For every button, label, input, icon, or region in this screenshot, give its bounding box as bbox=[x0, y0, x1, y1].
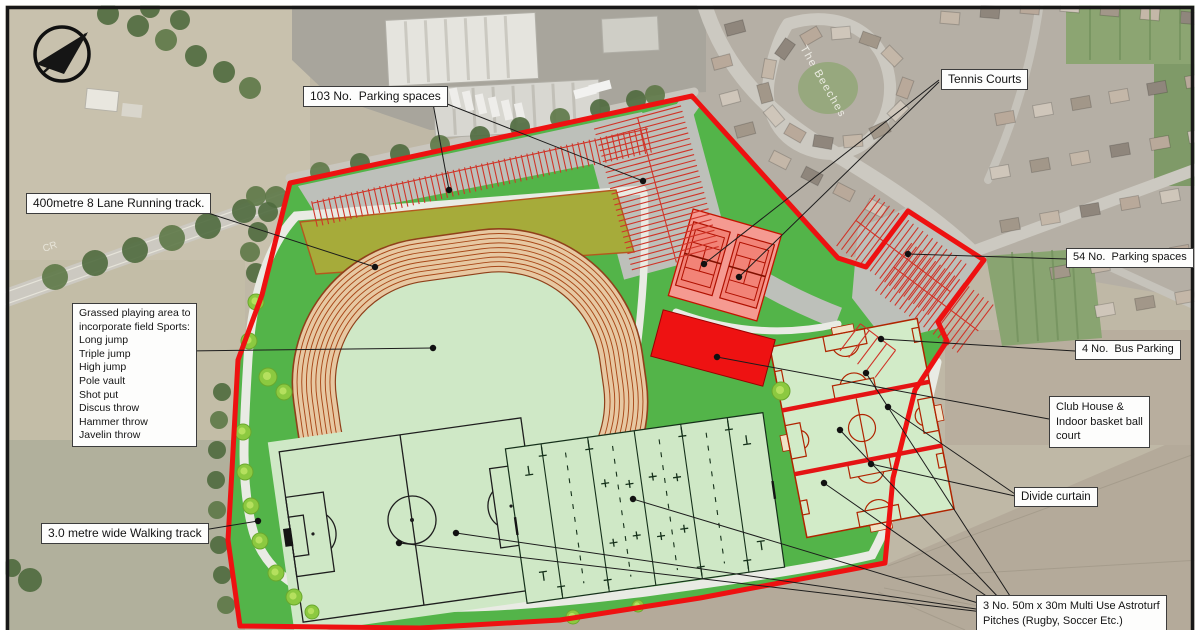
tree bbox=[185, 45, 207, 67]
tree bbox=[122, 237, 148, 263]
tree bbox=[246, 186, 266, 206]
tree bbox=[308, 608, 314, 614]
tree bbox=[207, 471, 225, 489]
leader-dot bbox=[701, 261, 707, 267]
warehouse-building bbox=[602, 16, 660, 53]
leader-dot bbox=[255, 518, 261, 524]
tree bbox=[258, 202, 278, 222]
cottage-building bbox=[85, 88, 119, 111]
house-roof bbox=[843, 134, 863, 148]
leader-dot bbox=[372, 264, 378, 270]
house-roof bbox=[831, 26, 851, 40]
leader-dot bbox=[878, 336, 884, 342]
house-roof bbox=[1135, 295, 1156, 310]
leader-dot bbox=[905, 251, 911, 257]
tree bbox=[240, 467, 247, 474]
house-roof bbox=[940, 11, 960, 25]
house-roof bbox=[995, 110, 1016, 125]
callout-tennis-courts: Tennis Courts bbox=[941, 69, 1028, 90]
leader-dot bbox=[446, 187, 452, 193]
tree bbox=[248, 222, 268, 242]
tree bbox=[271, 568, 278, 575]
house-roof bbox=[1040, 210, 1061, 225]
tree bbox=[170, 10, 190, 30]
house-roof bbox=[1071, 95, 1092, 110]
house-roof bbox=[813, 134, 834, 149]
house-roof bbox=[1080, 202, 1101, 217]
house-roof bbox=[761, 59, 776, 80]
tree bbox=[238, 427, 245, 434]
callout-divide-curtain: Divide curtain bbox=[1014, 487, 1098, 507]
house-roof bbox=[1000, 217, 1021, 232]
leader-dot bbox=[430, 345, 436, 351]
house-roof bbox=[1070, 150, 1091, 165]
tree bbox=[240, 242, 260, 262]
callout-walking-track: 3.0 metre wide Walking track bbox=[41, 523, 209, 544]
tree bbox=[82, 250, 108, 276]
house-roof bbox=[1095, 302, 1116, 317]
tree bbox=[279, 387, 286, 394]
tree bbox=[18, 568, 42, 592]
house-roof bbox=[1033, 102, 1054, 117]
callout-club-house: Club House &Indoor basket ballcourt bbox=[1049, 396, 1150, 448]
tree bbox=[217, 596, 235, 614]
leader-dot bbox=[453, 530, 459, 536]
leader-dot bbox=[821, 480, 827, 486]
tree bbox=[213, 61, 235, 83]
leader-dot bbox=[863, 370, 869, 376]
tree bbox=[776, 386, 784, 394]
leader-dot bbox=[396, 540, 402, 546]
tree bbox=[210, 536, 228, 554]
leader-dot bbox=[736, 274, 742, 280]
house-roof bbox=[1120, 195, 1141, 210]
house-roof bbox=[990, 164, 1011, 179]
house-roof bbox=[1030, 157, 1051, 172]
tree bbox=[127, 15, 149, 37]
callout-parking-103: 103 No. Parking spaces bbox=[303, 86, 448, 107]
tree bbox=[246, 501, 253, 508]
tree bbox=[208, 441, 226, 459]
tree bbox=[208, 501, 226, 519]
leader-dot bbox=[885, 404, 891, 410]
house-roof bbox=[1109, 88, 1130, 103]
house-roof bbox=[1147, 80, 1168, 95]
house-roof bbox=[1150, 135, 1171, 150]
house-roof bbox=[1110, 142, 1131, 157]
tree bbox=[195, 213, 221, 239]
tree bbox=[155, 29, 177, 51]
leader-dot bbox=[630, 496, 636, 502]
callout-grassed-area: Grassed playing area toincorporate field… bbox=[72, 303, 197, 447]
tree bbox=[210, 411, 228, 429]
callout-bus-parking: 4 No. Bus Parking bbox=[1075, 340, 1181, 360]
leader-dot bbox=[714, 354, 720, 360]
callout-running-track: 400metre 8 Lane Running track. bbox=[26, 193, 211, 214]
leader-dot bbox=[868, 461, 874, 467]
tree bbox=[263, 372, 271, 380]
tree bbox=[239, 77, 261, 99]
cottage-building bbox=[121, 103, 142, 118]
leader-dot bbox=[640, 178, 646, 184]
tree bbox=[42, 264, 68, 290]
callout-parking-54: 54 No. Parking spaces bbox=[1066, 248, 1194, 268]
tree bbox=[213, 383, 231, 401]
tree bbox=[3, 559, 21, 577]
tree bbox=[159, 225, 185, 251]
tree bbox=[255, 536, 262, 543]
tree bbox=[213, 566, 231, 584]
leader-dot bbox=[837, 427, 843, 433]
house-roof bbox=[1160, 188, 1181, 203]
callout-astroturf-pitches: 3 No. 50m x 30m Multi Use AstroturfPitch… bbox=[976, 595, 1167, 630]
site-plan-map: The Beeches CR bbox=[0, 0, 1200, 630]
tree bbox=[289, 592, 296, 599]
soccer-pitch bbox=[268, 406, 556, 630]
